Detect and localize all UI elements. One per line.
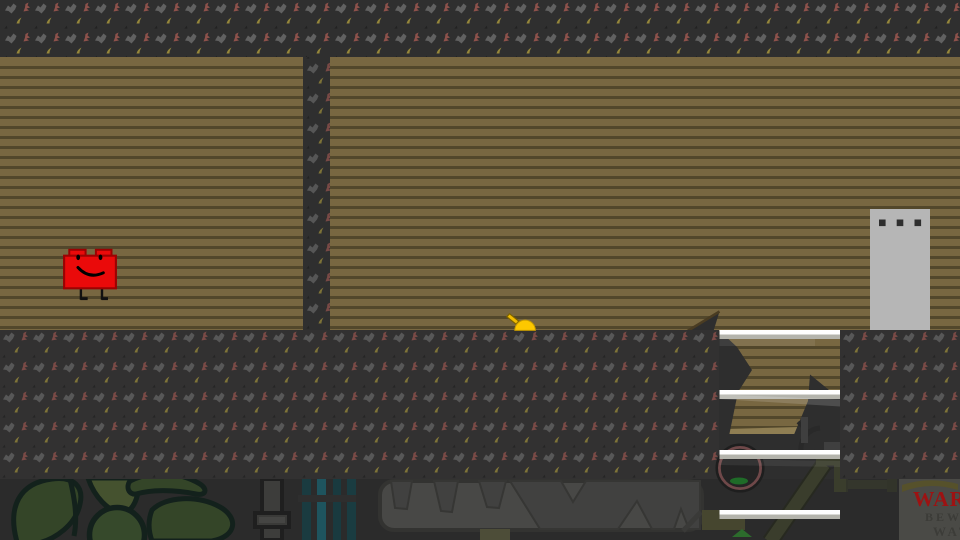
svg-text:WATCH: WATCH [933, 524, 960, 539]
svg-text:BEWARE: BEWARE [925, 510, 960, 524]
svg-text:WARNING: WARNING [913, 487, 960, 511]
